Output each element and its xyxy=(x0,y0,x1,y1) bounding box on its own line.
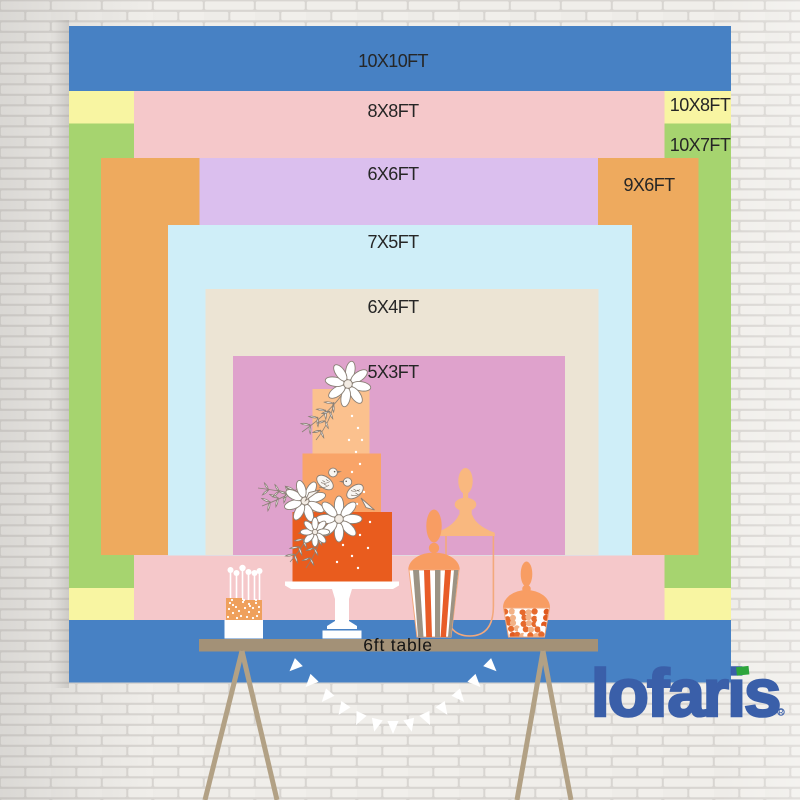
svg-text:9X6FT: 9X6FT xyxy=(623,175,675,195)
svg-text:7X5FT: 7X5FT xyxy=(367,232,419,252)
svg-text:R: R xyxy=(778,710,783,717)
svg-text:10X10FT: 10X10FT xyxy=(358,51,428,71)
svg-text:10X7FT: 10X7FT xyxy=(670,135,731,155)
svg-text:6ft table: 6ft table xyxy=(363,635,432,655)
svg-text:5X3FT: 5X3FT xyxy=(367,362,419,382)
svg-text:8X8FT: 8X8FT xyxy=(367,101,419,121)
svg-text:6X4FT: 6X4FT xyxy=(367,297,419,317)
svg-text:6X6FT: 6X6FT xyxy=(367,164,419,184)
svg-text:lofaris: lofaris xyxy=(591,656,779,731)
svg-text:10X8FT: 10X8FT xyxy=(670,95,731,115)
